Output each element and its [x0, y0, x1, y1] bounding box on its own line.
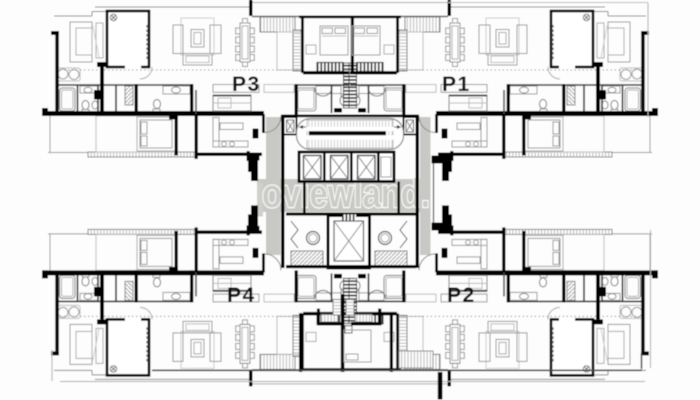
- svg-text:P3: P3: [232, 73, 261, 96]
- svg-text:P4: P4: [227, 284, 256, 307]
- svg-text:P2: P2: [447, 284, 476, 307]
- svg-text:P1: P1: [442, 73, 471, 96]
